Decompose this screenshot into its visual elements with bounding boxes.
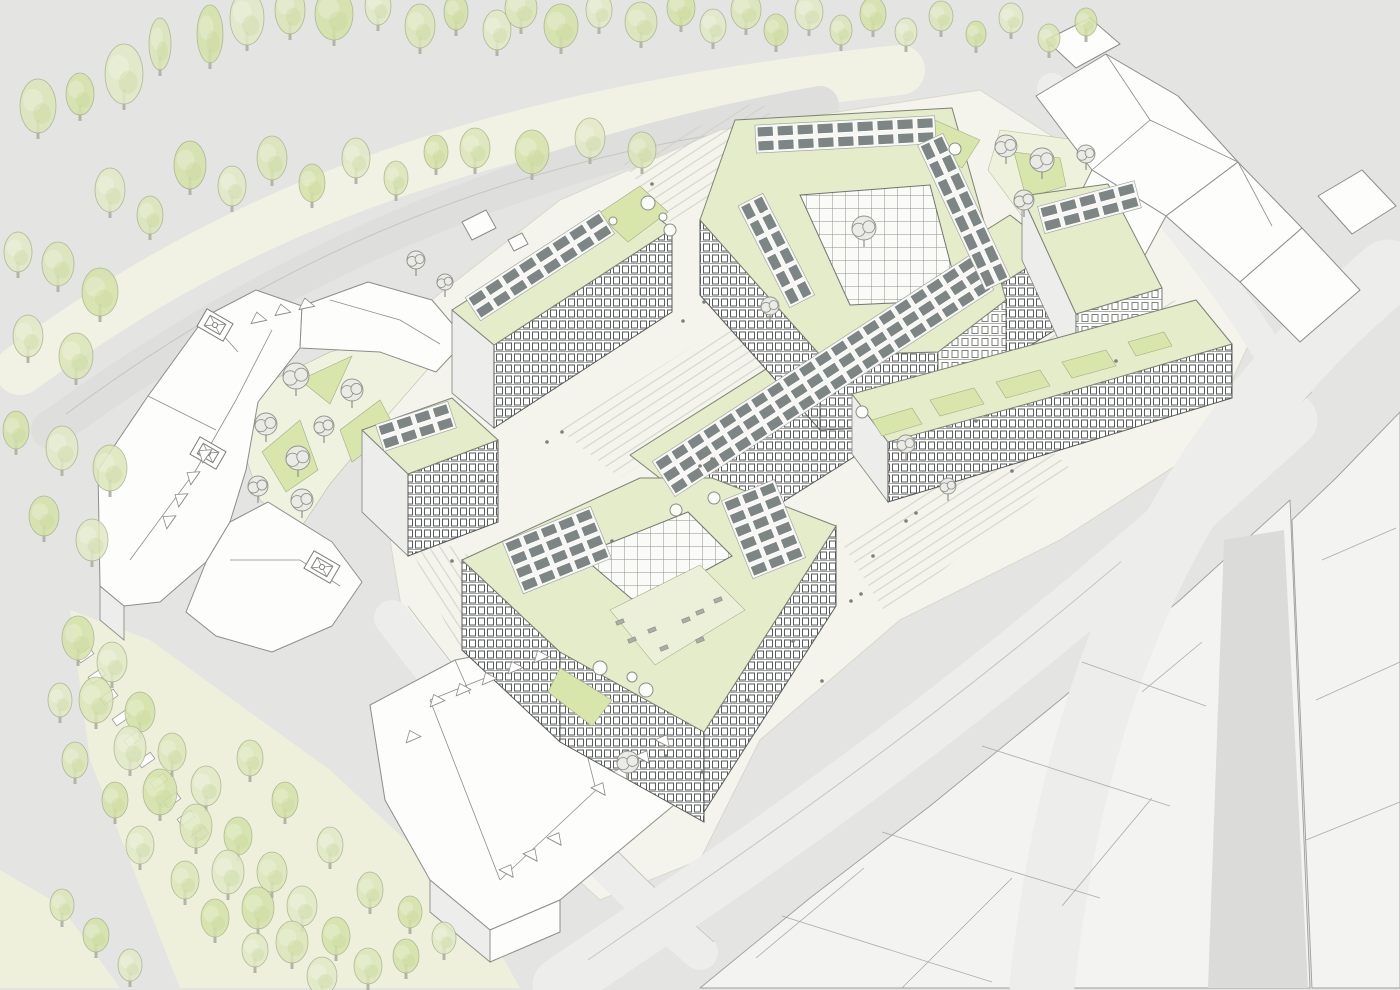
- solar-panel: [858, 135, 875, 146]
- roof-skylight: [627, 672, 637, 682]
- person-figure: [914, 511, 918, 515]
- person-figure: [698, 464, 702, 468]
- solar-panel: [798, 138, 815, 149]
- person-figure: [710, 457, 714, 461]
- solar-panel: [917, 118, 934, 129]
- watercolor-tree: [307, 957, 337, 990]
- person-figure: [760, 209, 764, 213]
- person-figure: [871, 554, 875, 558]
- roof-skylight: [856, 406, 868, 418]
- person-figure: [746, 698, 750, 702]
- person-figure: [1114, 359, 1118, 363]
- person-figure: [681, 319, 685, 323]
- person-figure: [702, 300, 706, 304]
- roof-skylight: [708, 492, 720, 504]
- solar-panel: [878, 134, 895, 145]
- roof-skylight: [593, 661, 607, 675]
- person-figure: [791, 639, 795, 643]
- architectural-site-plan: [0, 0, 1400, 990]
- person-figure: [650, 182, 654, 186]
- person-figure: [974, 419, 978, 423]
- person-figure: [560, 430, 564, 434]
- solar-panel: [797, 124, 814, 135]
- roof-skylight: [641, 196, 655, 210]
- person-figure: [904, 519, 908, 523]
- solar-panel: [757, 126, 774, 137]
- person-figure: [700, 770, 704, 774]
- person-figure: [450, 559, 454, 563]
- person-figure: [1010, 469, 1014, 473]
- solar-panel: [758, 140, 775, 151]
- solar-panel: [837, 122, 854, 133]
- solar-panel: [778, 139, 795, 150]
- roof-skylight: [659, 213, 667, 221]
- roof-skylight: [609, 217, 617, 225]
- solar-panel: [838, 136, 855, 147]
- solar-panel: [877, 120, 894, 131]
- solar-panel: [897, 119, 914, 130]
- solar-panel: [777, 125, 794, 136]
- roof-skylight: [639, 683, 653, 697]
- person-figure: [820, 679, 824, 683]
- roof-skylight: [670, 504, 682, 516]
- person-figure: [545, 440, 549, 444]
- solar-panel: [817, 123, 834, 134]
- solar-panel: [898, 133, 915, 144]
- solar-panel: [818, 137, 835, 148]
- person-figure: [610, 539, 614, 543]
- roof-skylight: [949, 143, 961, 155]
- person-figure: [849, 599, 853, 603]
- person-figure: [664, 754, 668, 758]
- roof-skylight: [664, 224, 676, 236]
- person-figure: [859, 592, 863, 596]
- site-plan-svg: [0, 0, 1400, 990]
- person-figure: [480, 479, 484, 483]
- solar-panel: [857, 121, 874, 132]
